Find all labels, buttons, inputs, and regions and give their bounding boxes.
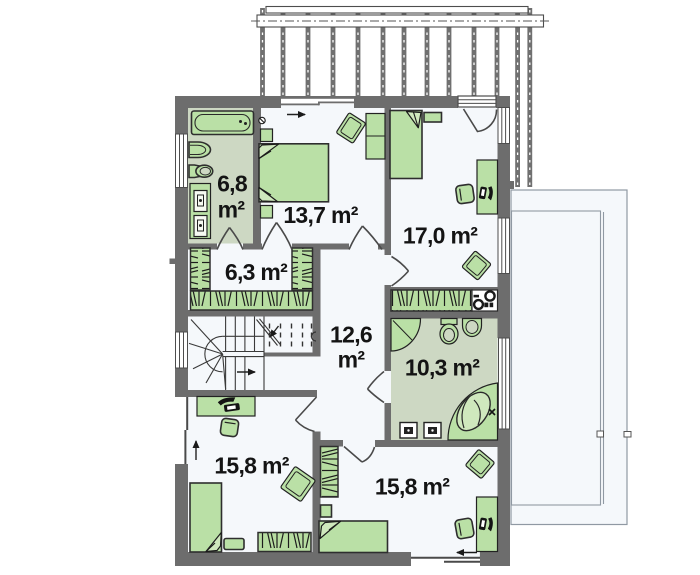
svg-text:17,0 m²: 17,0 m²: [403, 223, 478, 249]
svg-text:6,3 m²: 6,3 m²: [225, 259, 288, 285]
svg-text:15,8 m²: 15,8 m²: [214, 453, 289, 479]
svg-text:m²: m²: [218, 197, 246, 223]
svg-text:10,3 m²: 10,3 m²: [405, 355, 480, 381]
svg-text:15,8 m²: 15,8 m²: [375, 474, 450, 500]
svg-text:6,8: 6,8: [217, 171, 248, 197]
svg-text:m²: m²: [338, 347, 366, 373]
svg-text:12,6: 12,6: [330, 322, 372, 348]
svg-text:13,7 m²: 13,7 m²: [283, 202, 358, 228]
